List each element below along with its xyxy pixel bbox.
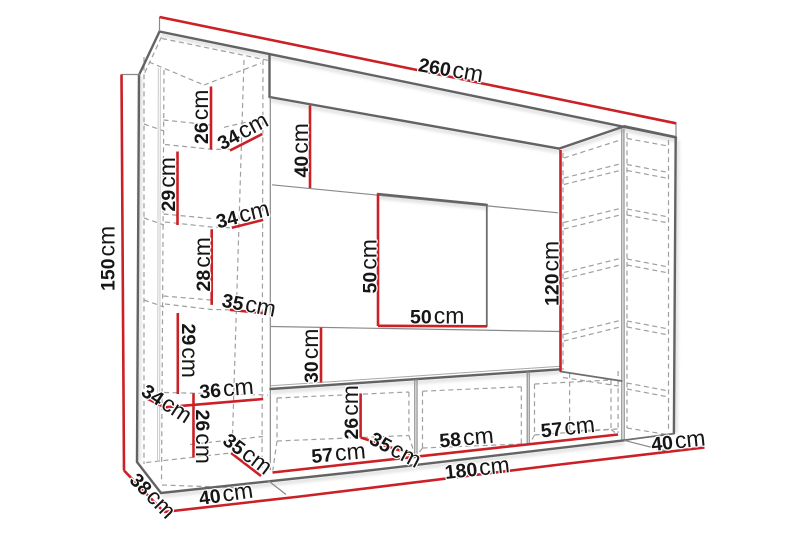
svg-text:50cm: 50cm <box>356 239 382 293</box>
svg-text:30cm: 30cm <box>297 329 323 383</box>
svg-text:50cm: 50cm <box>410 303 464 329</box>
svg-text:28cm: 28cm <box>189 237 215 291</box>
svg-text:40cm: 40cm <box>287 123 313 177</box>
svg-text:26cm: 26cm <box>337 385 363 439</box>
svg-text:26cm: 26cm <box>187 90 213 144</box>
svg-text:29cm: 29cm <box>177 324 203 378</box>
svg-text:29cm: 29cm <box>154 157 180 211</box>
svg-text:26cm: 26cm <box>191 410 217 464</box>
